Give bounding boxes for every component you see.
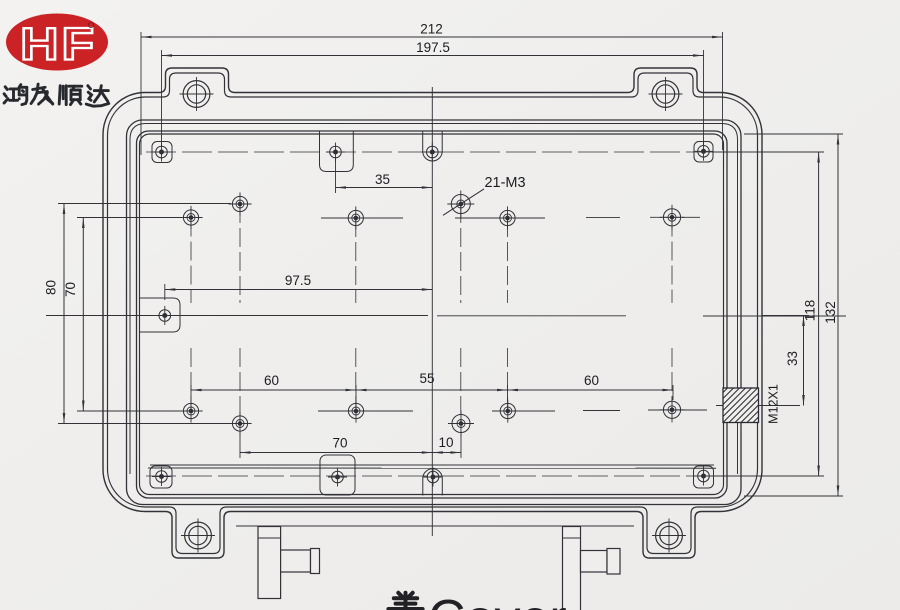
svg-text:HF: HF	[20, 19, 97, 70]
svg-text:10: 10	[438, 435, 453, 450]
svg-text:97.5: 97.5	[285, 273, 311, 288]
svg-text:35: 35	[375, 172, 390, 187]
svg-text:70: 70	[63, 282, 78, 297]
svg-text:212: 212	[420, 22, 443, 37]
svg-text:60: 60	[264, 373, 279, 388]
svg-text:60: 60	[584, 373, 599, 388]
svg-text:55: 55	[419, 371, 434, 386]
svg-text:70: 70	[332, 436, 347, 451]
svg-text:21-M3: 21-M3	[484, 175, 525, 191]
svg-text:33: 33	[785, 351, 800, 366]
svg-text:197.5: 197.5	[416, 40, 450, 55]
svg-text:Cover: Cover	[428, 590, 567, 610]
svg-text:132: 132	[823, 301, 838, 324]
svg-text:118: 118	[803, 300, 818, 322]
svg-text:M12X1: M12X1	[767, 384, 781, 424]
svg-text:80: 80	[44, 280, 59, 295]
